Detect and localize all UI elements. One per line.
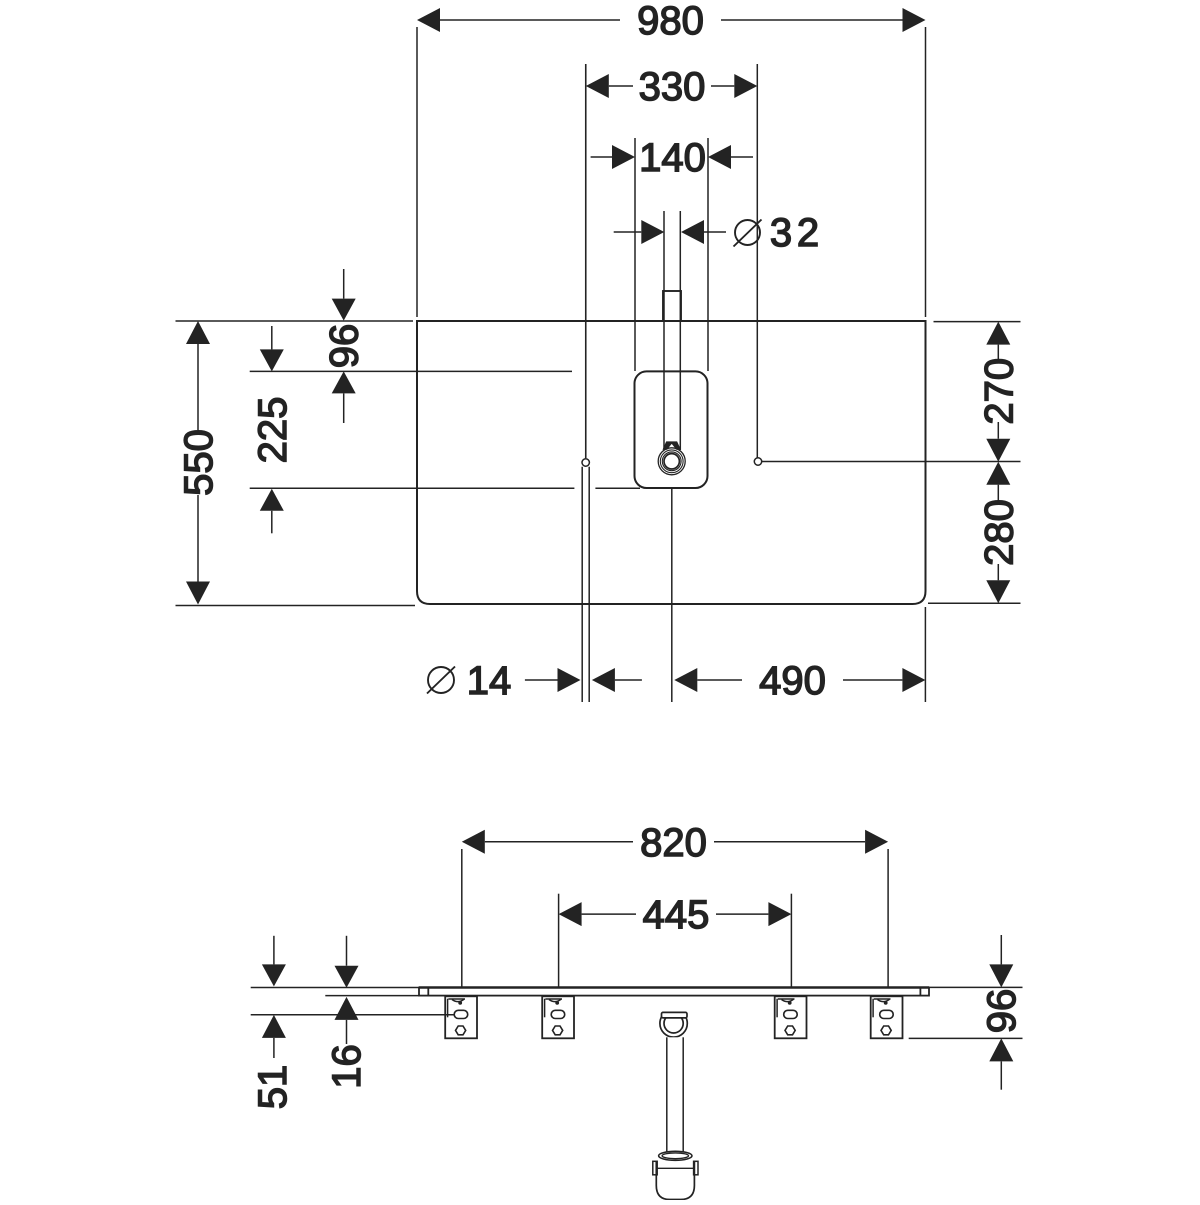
svg-text:445: 445 [643,893,710,937]
svg-text:980: 980 [637,0,704,43]
svg-text:225: 225 [251,397,295,464]
svg-text:2: 2 [797,211,819,255]
svg-text:51: 51 [251,1065,295,1110]
svg-text:16: 16 [325,1044,369,1089]
svg-text:330: 330 [639,65,706,109]
svg-text:96: 96 [323,324,367,369]
svg-text:3: 3 [770,211,792,255]
svg-text:550: 550 [177,429,221,496]
svg-text:490: 490 [759,659,826,703]
svg-text:140: 140 [639,136,706,180]
svg-text:14: 14 [467,659,512,703]
svg-text:270: 270 [977,358,1021,425]
svg-text:96: 96 [980,989,1024,1034]
svg-text:820: 820 [640,821,707,865]
svg-text:280: 280 [977,499,1021,566]
